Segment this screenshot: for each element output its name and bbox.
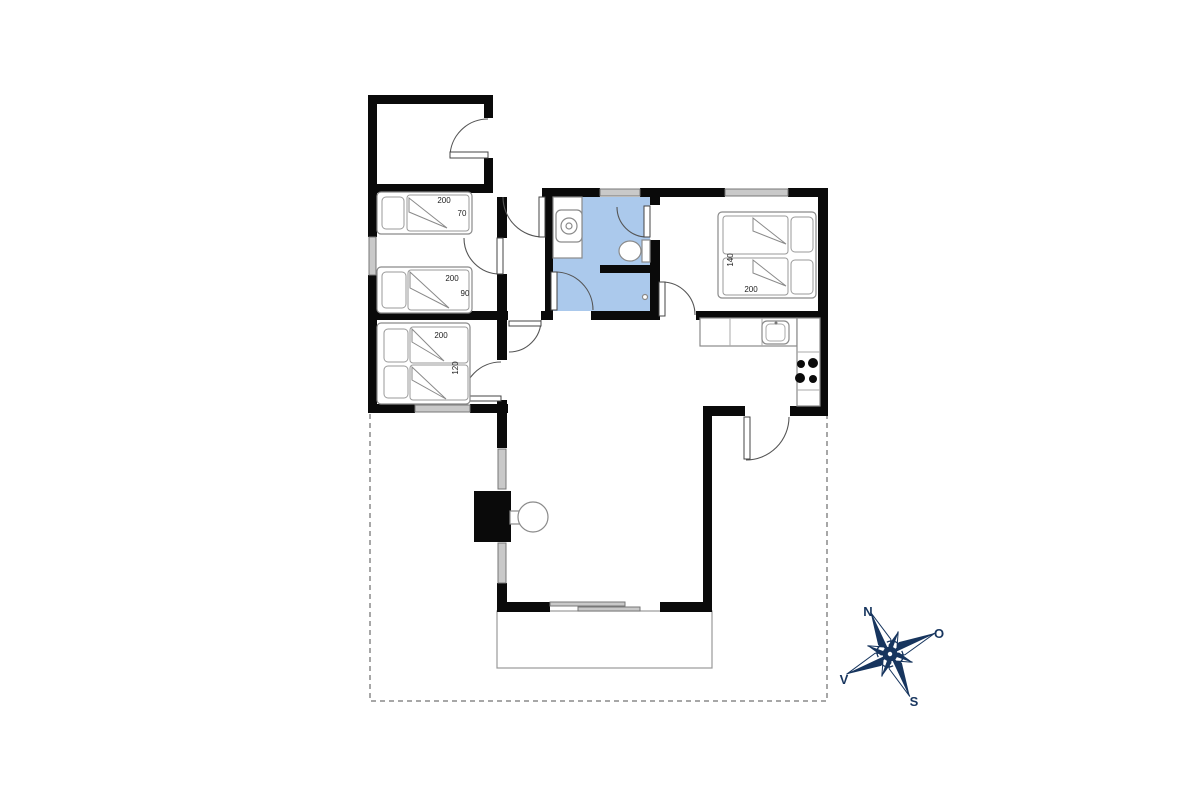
wall-segment xyxy=(703,406,745,416)
toilet-tank xyxy=(642,240,650,262)
bed-length-label: 200 xyxy=(744,285,758,294)
compass-label-south: S xyxy=(910,694,919,709)
door-annex xyxy=(450,119,488,158)
compass-label-west: V xyxy=(840,672,849,687)
wall-segment xyxy=(790,406,828,416)
door-hall-living xyxy=(509,320,541,352)
door-arc xyxy=(503,197,543,237)
sliding-window-pane xyxy=(550,602,625,606)
sink-drain xyxy=(566,223,572,229)
pillow xyxy=(382,197,404,229)
door-leaf xyxy=(659,282,665,316)
bed-length-label: 200 xyxy=(437,196,451,205)
bed-single-70: 200 70 xyxy=(377,192,472,234)
bed-single-90: 200 90 xyxy=(377,267,472,313)
wall-segment xyxy=(541,311,553,320)
pillow xyxy=(384,366,408,398)
floor-plan-page: 200 70 200 90 200 120 140 200 xyxy=(0,0,1200,800)
bed-width-label: 120 xyxy=(451,361,460,375)
window xyxy=(600,189,640,196)
toilet-bowl xyxy=(619,241,641,261)
burner-icon xyxy=(795,373,805,383)
window xyxy=(369,237,376,275)
wall-segment xyxy=(542,188,600,197)
bed-length-label: 200 xyxy=(434,331,448,340)
door-leaf xyxy=(644,206,650,237)
door-leaf xyxy=(450,152,488,158)
wall-segment xyxy=(368,95,377,237)
wall-segment xyxy=(484,95,493,118)
door-bedroom-master xyxy=(659,282,695,316)
kitchen-fixtures xyxy=(700,318,820,406)
faucet-icon xyxy=(775,322,778,325)
wall-segment xyxy=(368,275,377,413)
wall-segment xyxy=(497,274,507,311)
burner-icon xyxy=(797,360,805,368)
window xyxy=(498,543,506,583)
wall-segment xyxy=(497,400,507,448)
bathroom-partition-wall xyxy=(600,265,660,273)
wall-segment xyxy=(497,320,507,360)
bed-width-label: 140 xyxy=(726,253,735,267)
door-arc xyxy=(746,417,789,460)
door-entry-hall xyxy=(503,197,545,237)
pillow xyxy=(382,272,406,308)
wall-segment xyxy=(497,602,550,612)
compass-rose: N O V S xyxy=(827,591,955,717)
bed-width-label: 90 xyxy=(461,289,470,298)
bed-length-label: 200 xyxy=(445,274,459,283)
window xyxy=(498,449,506,489)
wall-segment xyxy=(703,416,712,612)
sliding-window-pane xyxy=(578,607,640,611)
wall-segment xyxy=(650,197,660,205)
wood-stove xyxy=(518,502,548,532)
fireplace xyxy=(474,491,548,542)
door-leaf xyxy=(539,197,545,237)
chimney-block xyxy=(474,491,511,542)
wall-segment xyxy=(640,188,725,197)
terrace xyxy=(497,611,712,668)
door-leaf xyxy=(497,238,503,274)
window xyxy=(415,405,470,412)
pillow xyxy=(791,217,813,252)
door-kitchen-exterior xyxy=(744,417,789,460)
pillow xyxy=(384,329,408,362)
bed-width-label: 70 xyxy=(458,209,467,218)
bed-double-140: 140 200 xyxy=(718,212,816,298)
wall-segment xyxy=(660,602,712,612)
wall-segment xyxy=(368,95,493,104)
burner-icon xyxy=(809,375,817,383)
compass-label-north: N xyxy=(863,604,872,619)
floor-drain xyxy=(643,295,648,300)
bed-double-120: 200 120 xyxy=(377,323,470,404)
floor-plan-svg: 200 70 200 90 200 120 140 200 xyxy=(0,0,1200,800)
door-leaf xyxy=(551,272,557,310)
compass-star xyxy=(827,591,955,717)
door-leaf xyxy=(509,321,541,326)
wall-segment xyxy=(497,197,507,238)
wall-segment xyxy=(368,404,415,413)
pillow xyxy=(791,260,813,294)
door-leaf xyxy=(744,417,750,459)
burner-icon xyxy=(808,358,818,368)
window xyxy=(725,189,788,196)
door-arc xyxy=(450,119,488,157)
compass-label-east: O xyxy=(934,626,944,641)
wall-segment xyxy=(591,311,660,320)
door-arc xyxy=(662,282,695,315)
